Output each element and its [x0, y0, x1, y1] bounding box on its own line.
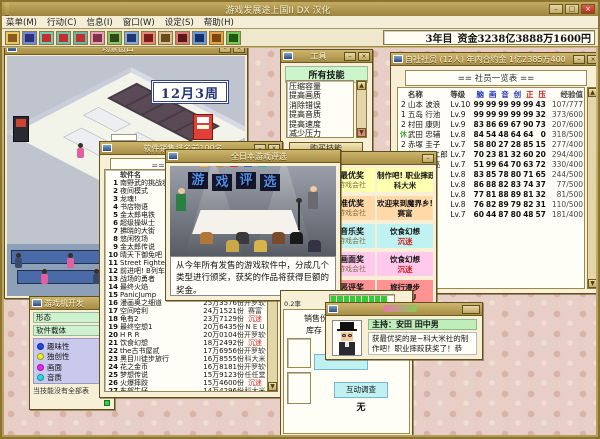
stock-label: 库存	[306, 325, 322, 336]
skill-item[interactable]: 提高音质	[289, 110, 351, 119]
employee-table-header: 名称等级脑画音创正压经验值	[399, 90, 583, 100]
host-dialog-window: 主持：安田 田中男 获最优奖的是~科大米社的制作吧！职业摔跤获奖了！恭喜。	[325, 302, 483, 360]
menu-窗口(W)[interactable]: 窗口(W)	[123, 16, 155, 28]
skills-minimize-button[interactable]: –	[344, 52, 356, 61]
ranking-row[interactable]: 21饮食幻想18万2492份沉迷	[107, 339, 266, 347]
audience-member	[200, 232, 213, 244]
maximize-button[interactable]: □	[565, 4, 579, 14]
staff-sprite	[41, 274, 48, 284]
window-icon	[393, 55, 403, 63]
employee-row[interactable]: 1五岛 行池Lv.9999999999932373/600	[399, 110, 583, 120]
employee-row[interactable]: 2山本 波浪Lv.10999999999943107/777	[399, 100, 583, 110]
stat-column-创: 创	[509, 90, 521, 100]
plant-icon[interactable]	[226, 31, 241, 45]
skill-item[interactable]: 提高速度	[289, 120, 351, 129]
window-icon	[168, 152, 178, 160]
menu-信息(I)[interactable]: 信息(I)	[87, 16, 113, 28]
desk	[83, 107, 131, 132]
skill-item[interactable]: 压缩容量	[289, 82, 351, 91]
employee-row[interactable]: 2村田 康则Lv.9838669679073207/600	[399, 120, 583, 130]
dev-stat-音质: 音质	[37, 373, 107, 384]
menubar: 菜单(M)行动(C)信息(I)窗口(W)设定(S)帮助(H)	[2, 16, 598, 29]
money-status: 3年目 资金3238亿3888万1600円	[383, 30, 595, 45]
stock-box	[287, 372, 311, 404]
menu-设定(S)[interactable]: 设定(S)	[165, 16, 194, 28]
stat-column-脑: 脑	[472, 90, 484, 100]
awards-titlebar[interactable]: 全日本游戏评选	[166, 150, 340, 163]
microphone	[298, 202, 300, 230]
game-window: 游戏发展途上国II DX 汉化 – □ × 菜单(M)行动(C)信息(I)窗口(…	[0, 0, 600, 439]
survey-button[interactable]: 互动调查	[334, 382, 388, 398]
audience-member	[272, 232, 285, 244]
award-list-minimize-button[interactable]: –	[422, 154, 434, 163]
room-tag	[111, 134, 137, 141]
app-title: 游戏发展途上国II DX 汉化	[9, 3, 547, 16]
dialog-titlebar[interactable]	[326, 303, 482, 316]
building-icon[interactable]	[124, 31, 139, 45]
gauge-label: 0.2率	[284, 298, 301, 308]
stage-table	[192, 210, 300, 234]
skills-window: 工具 – × 所有技能 压缩容量提高画质消除错误提高音质提高速度减少压力 ▲▼ …	[280, 49, 373, 157]
dev-stat-独创性: 独创性	[37, 352, 107, 363]
skills-list[interactable]: 压缩容量提高画质消除错误提高音质提高速度减少压力	[286, 80, 354, 138]
award-game-cell: 欢迎来到魔界乡!赛富	[377, 196, 433, 220]
ranking-row[interactable]: 24花之金币16万8181份开罗软件	[107, 363, 266, 371]
dialog-host-name: 主持：安田 田中男	[368, 319, 477, 330]
stat-column-正: 正	[521, 90, 533, 100]
host-figure	[308, 192, 318, 209]
audience-member	[290, 232, 303, 244]
skill-item[interactable]: 减少压力	[289, 129, 351, 138]
award-icon[interactable]	[141, 31, 156, 45]
desktop: 场景窗口 – ×	[4, 48, 596, 435]
window-icon	[32, 299, 42, 307]
stat-up-icon-2[interactable]	[56, 31, 71, 45]
award-game-cell: 制作吧! 职业摔跤科大米	[377, 168, 433, 192]
dialog-minimize-button[interactable]	[462, 305, 480, 314]
ranking-row[interactable]: 26火爆摔跤15万4600份沉迷	[107, 379, 266, 387]
window-icon	[7, 48, 17, 52]
year-label: 3年目	[426, 30, 453, 45]
vending-machine	[193, 114, 213, 140]
ranking-row[interactable]: 19最终空想120万6435份N E U	[107, 323, 266, 331]
window-icon	[328, 305, 338, 313]
skill-item[interactable]: 消除错误	[289, 101, 351, 110]
host-portrait	[332, 320, 362, 356]
dev-stat-画面: 画面	[37, 362, 107, 373]
skills-close-button[interactable]: ×	[358, 52, 370, 61]
money-label: 资金3238亿3888万1600円	[458, 30, 592, 45]
shop-icon[interactable]	[90, 31, 105, 45]
stat-column-压: 压	[534, 90, 546, 100]
employee-row[interactable]: 2赤塚 圭子Lv.7588027288515277/400	[399, 140, 583, 150]
security-icon[interactable]	[22, 31, 37, 45]
skills-scrollbar[interactable]: ▲▼	[356, 80, 367, 138]
awards-ceremony-window: 全日本游戏评选 游戏评选 从今年所有发售的游戏软件中，分成几个类型进行颁奖，获奖…	[165, 149, 341, 301]
presenter-woman	[176, 194, 186, 211]
dialog-text: 获最优奖的是~科大米社的制作吧！职业摔跤获奖了！恭喜。	[368, 332, 477, 355]
employee-list-header: == 社员一览表 ==	[405, 70, 587, 86]
staff-sprite	[67, 258, 74, 268]
ranking-row[interactable]: 25梦想传说15万9123份任任堂	[107, 371, 266, 379]
scene-close-button[interactable]: ×	[233, 48, 245, 53]
ranking-row[interactable]: 20H R R20万0104份开罗软件	[107, 331, 266, 339]
stat-column-画: 画	[484, 90, 496, 100]
ranking-row[interactable]: 18龟有223万7129份沉迷	[107, 315, 266, 323]
sales-count-box	[287, 338, 311, 368]
employee-close-button[interactable]: ×	[587, 55, 596, 64]
stat-up-icon-3[interactable]	[73, 31, 88, 45]
ranking-row[interactable]: 23黑目川徒步旅行16万8555份科大米	[107, 355, 266, 363]
employee-scrollbar[interactable]: ▲▼	[587, 87, 596, 289]
skills-title: 工具	[295, 51, 342, 62]
award-game-cell: 饮食幻想沉迷	[377, 252, 433, 276]
hr-icon[interactable]	[175, 31, 190, 45]
awards-title: 全日本游戏评选	[180, 151, 338, 162]
award-game-cell: 饮食幻想沉迷	[377, 224, 433, 248]
window-icon	[283, 52, 293, 60]
close-button[interactable]: ×	[581, 4, 595, 14]
scene-titlebar[interactable]: 场景窗口 – ×	[5, 48, 247, 55]
staff-sprite	[15, 258, 22, 268]
employee-titlebar[interactable]: 自社社员 (12人) 年内合约金 1亿2385万400 – ×	[391, 53, 596, 66]
staff-sprite	[77, 148, 84, 158]
minimize-button[interactable]: –	[549, 4, 563, 14]
employee-title: 自社社员 (12人) 年内合约金 1亿2385万400	[405, 54, 571, 65]
arcade-cabinet	[13, 116, 29, 142]
save-icon[interactable]	[5, 31, 20, 45]
team-icon[interactable]	[107, 31, 122, 45]
audience-member	[254, 240, 267, 252]
date-badge: 12月3周	[151, 80, 229, 104]
scene-title: 场景窗口	[19, 48, 217, 54]
audience-member	[226, 240, 239, 252]
ranking-row[interactable]: 22the古书屋贰17万6956份开罗软件	[107, 347, 266, 355]
ranking-row[interactable]: 27东部牛仔14万4296份科大米	[107, 387, 266, 392]
employee-minimize-button[interactable]: –	[573, 55, 585, 64]
monitor-icon[interactable]	[192, 31, 207, 45]
stage-banner: 游戏评选	[188, 172, 280, 191]
scene-minimize-button[interactable]: –	[219, 48, 231, 53]
skills-titlebar[interactable]: 工具 – ×	[281, 50, 372, 63]
main-titlebar[interactable]: 游戏发展途上国II DX 汉化 – □ ×	[2, 2, 598, 16]
stat-column-音: 音	[496, 90, 508, 100]
ceremony-stage: 游戏评选	[170, 166, 336, 256]
skill-item[interactable]: 提高画质	[289, 91, 351, 100]
employee-row[interactable]: 休武田 忠辅Lv.884544864640318/500	[399, 130, 583, 140]
arcade-icon[interactable]	[209, 31, 224, 45]
mail-icon[interactable]	[158, 31, 173, 45]
dev-stat-趣味性: 趣味性	[37, 341, 107, 352]
menu-帮助(H)[interactable]: 帮助(H)	[204, 16, 234, 28]
ceremony-logo	[383, 305, 417, 312]
menu-行动(C)[interactable]: 行动(C)	[47, 16, 77, 28]
ranking-row[interactable]: 17空间哈利24万1521份赛富	[107, 307, 266, 315]
survey-value: 无	[334, 400, 388, 413]
status-square	[104, 400, 110, 406]
stat-up-icon-1[interactable]	[39, 31, 54, 45]
audience-member	[308, 240, 321, 252]
window-icon	[102, 144, 112, 152]
menu-菜单(M)[interactable]: 菜单(M)	[6, 16, 37, 28]
